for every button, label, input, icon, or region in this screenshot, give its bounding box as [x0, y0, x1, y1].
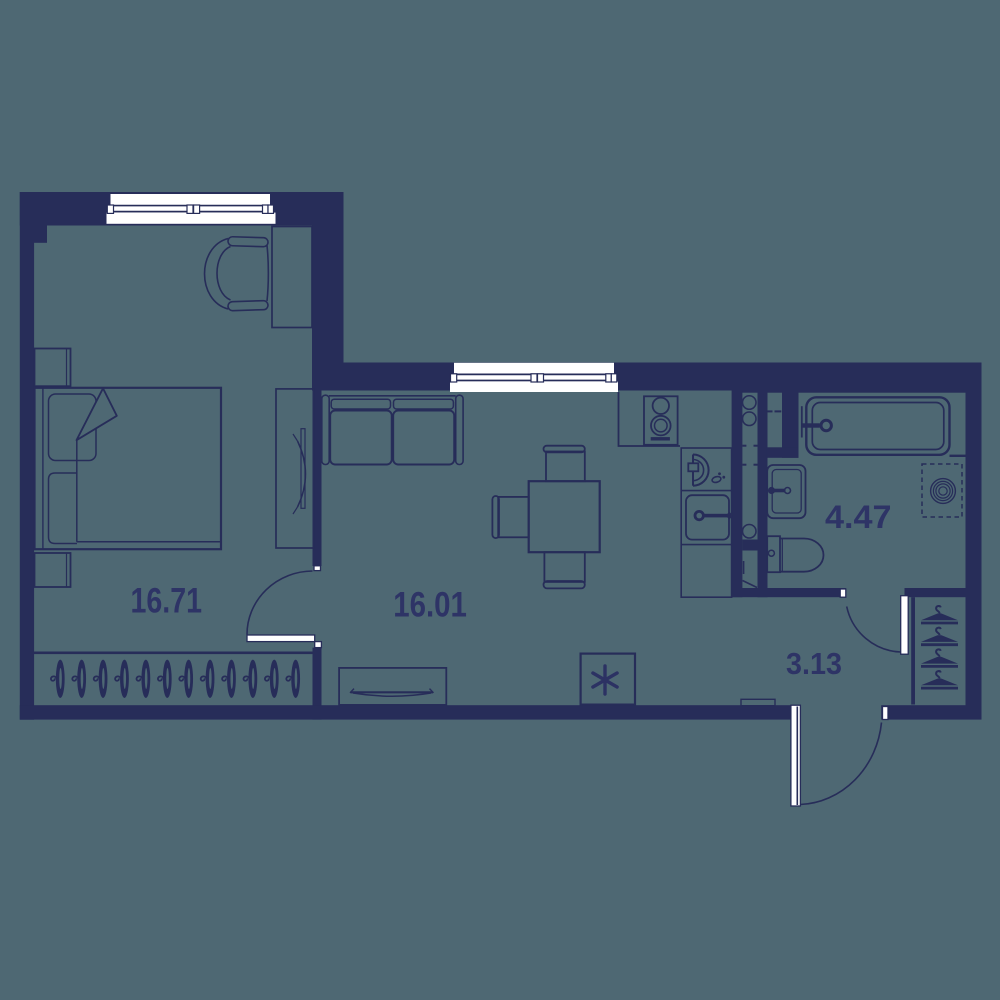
svg-text:16.71: 16.71: [131, 581, 203, 620]
svg-text:3.13: 3.13: [786, 646, 842, 681]
svg-text:4.47: 4.47: [825, 499, 892, 535]
svg-text:16.01: 16.01: [393, 585, 467, 624]
